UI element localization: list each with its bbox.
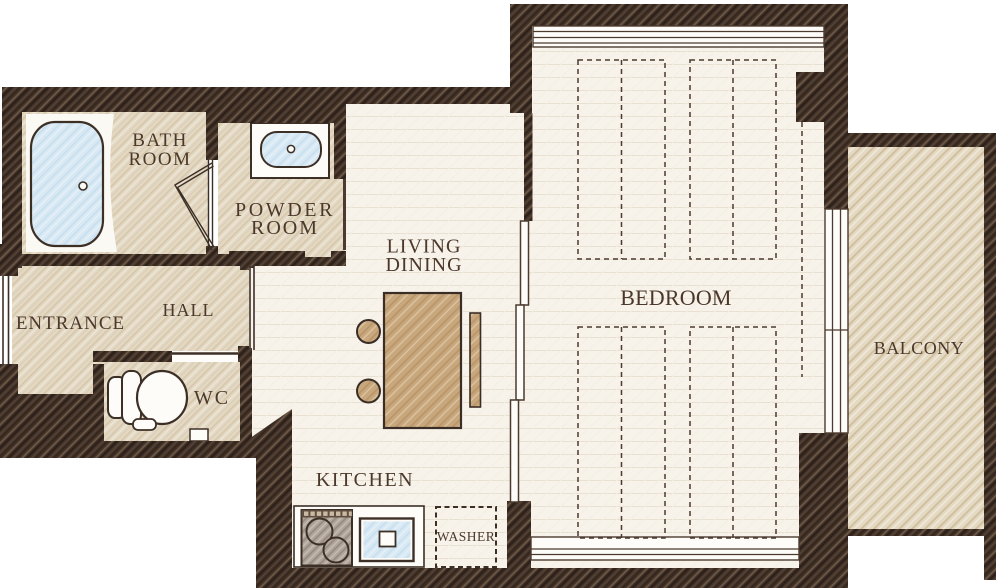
svg-text:WASHER: WASHER [437,529,496,544]
svg-text:DINING: DINING [385,254,462,276]
svg-text:BEDROOM: BEDROOM [620,285,731,310]
svg-text:BALCONY: BALCONY [874,338,965,358]
svg-text:HALL: HALL [163,300,215,320]
svg-text:BATH: BATH [132,130,188,151]
svg-text:ROOM: ROOM [251,217,319,239]
svg-text:ENTRANCE: ENTRANCE [16,313,125,334]
svg-text:KITCHEN: KITCHEN [316,469,414,491]
svg-text:WC: WC [194,387,230,409]
svg-text:ROOM: ROOM [128,149,191,170]
